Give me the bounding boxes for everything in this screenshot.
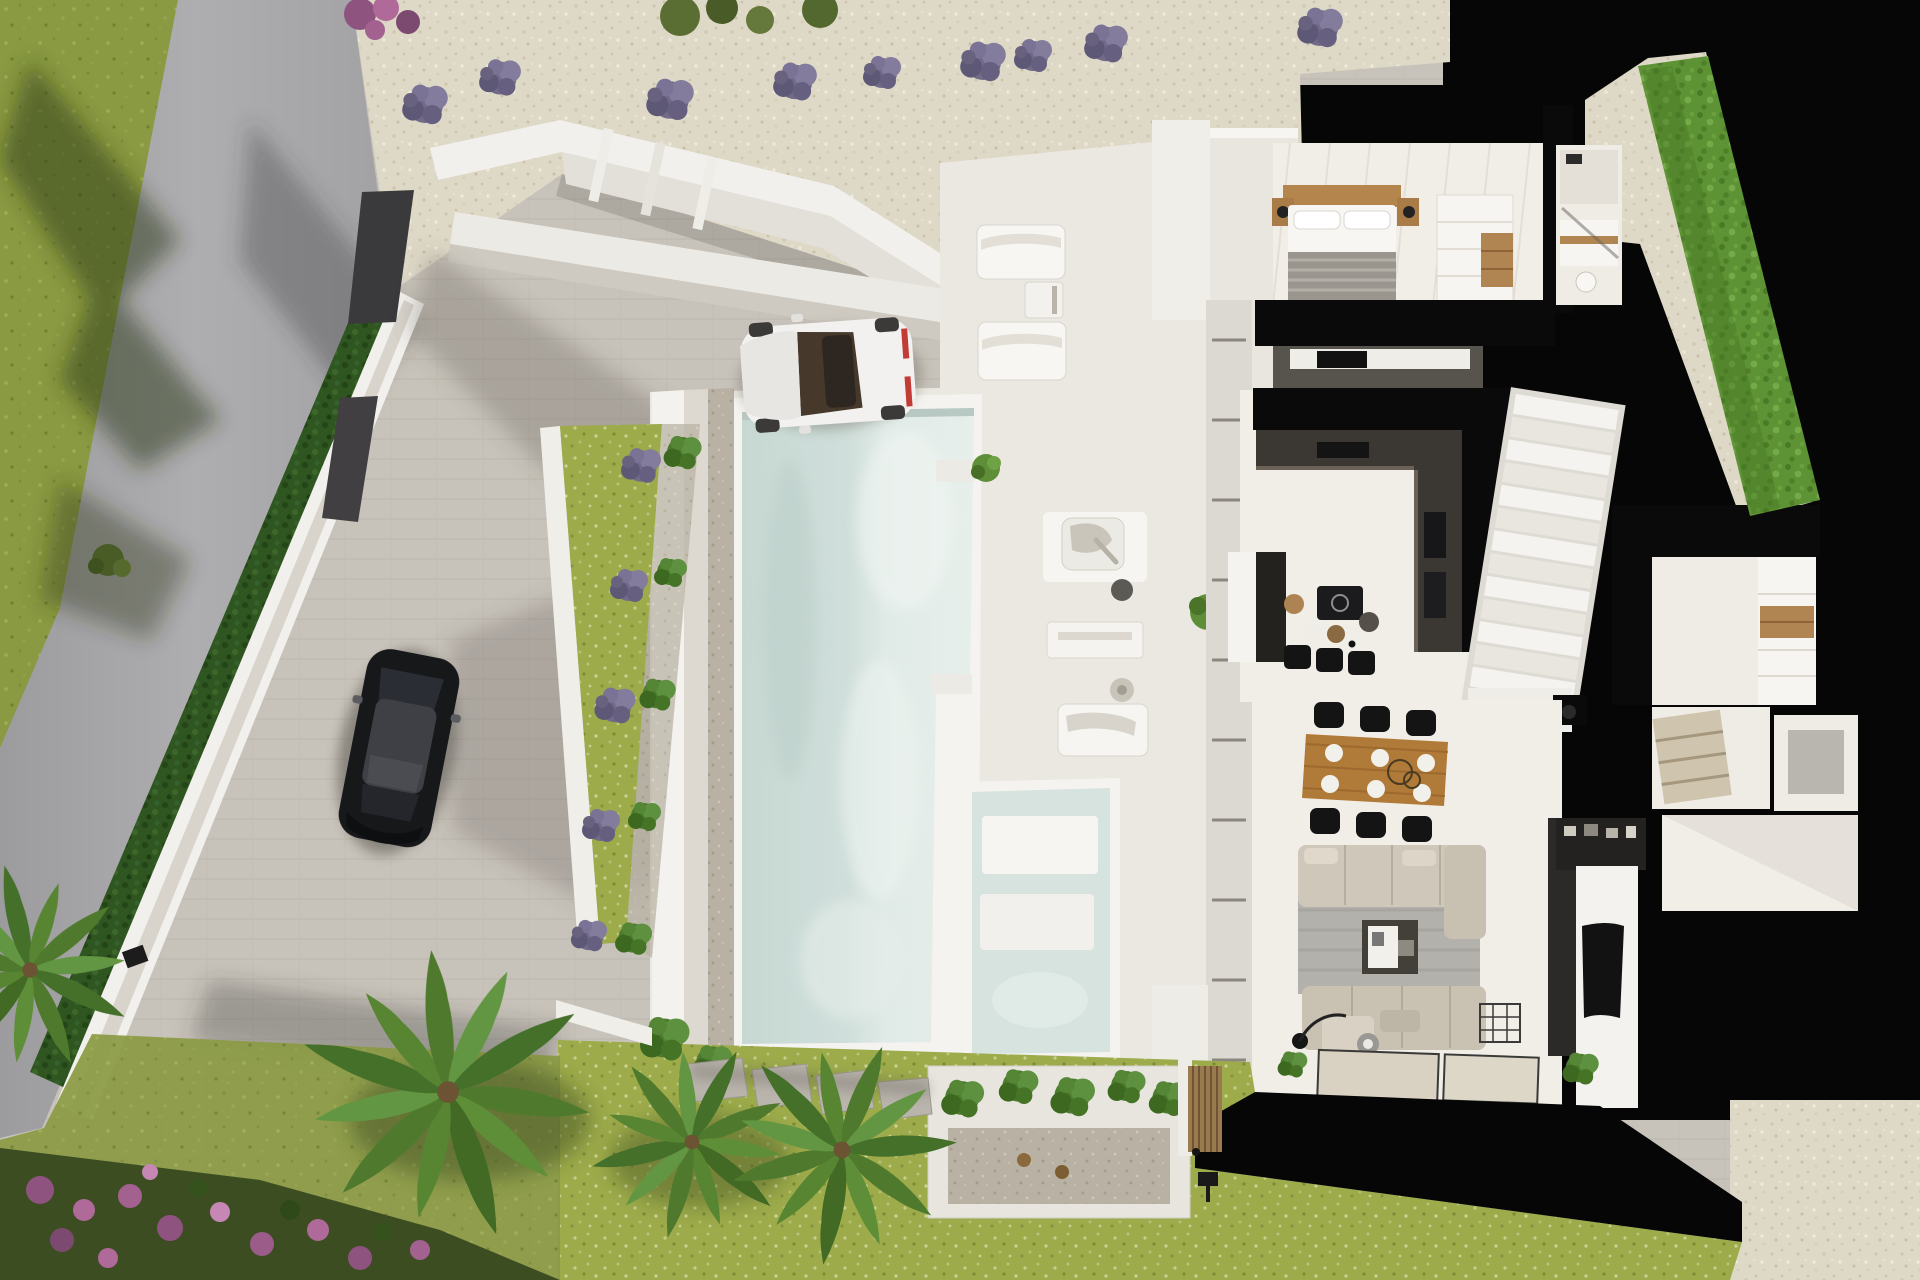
tv-screen-small (1317, 351, 1367, 368)
white-car (734, 306, 926, 439)
wood-stool (1284, 594, 1304, 614)
sun-lounger-2 (978, 322, 1066, 380)
bar-stool-2 (1316, 648, 1343, 672)
dining-chair (1314, 702, 1344, 728)
island-hob (1317, 586, 1363, 620)
pool-step-notch (936, 460, 974, 482)
garden-lamp (1198, 1172, 1218, 1186)
sun-lounger (977, 225, 1065, 279)
gravel-planter (928, 1066, 1190, 1218)
media-niche (1273, 346, 1483, 390)
bar-stool (1284, 645, 1311, 669)
dining-chair (1360, 706, 1390, 732)
island-side (1228, 552, 1258, 662)
floor-lamp (1562, 705, 1576, 719)
round-side-table (1111, 579, 1133, 601)
wardrobe (1437, 195, 1513, 303)
side-table (1025, 282, 1063, 318)
spa-bench-2 (980, 894, 1094, 950)
pantry (1612, 505, 1820, 705)
cooktop (1317, 442, 1369, 458)
floor-mat (1788, 730, 1844, 794)
gravel-corner (1730, 1100, 1920, 1280)
bedroom (1272, 143, 1553, 305)
living-room (1278, 818, 1646, 1108)
bar-stool-3 (1348, 651, 1375, 675)
tv-screen (1582, 923, 1624, 1018)
dining-chair (1402, 816, 1432, 842)
dining-set (1302, 702, 1448, 842)
kitchen-island (1256, 552, 1286, 662)
bathroom (1556, 145, 1622, 305)
spa-bench (982, 816, 1098, 874)
render-canvas (0, 0, 1920, 1280)
outdoor-armchair (1062, 518, 1124, 570)
pool-step-notch-2 (932, 674, 972, 694)
oven (1424, 512, 1446, 558)
bedside-lamp-2 (1403, 206, 1415, 218)
headboard (1283, 185, 1401, 207)
toilet (1576, 272, 1596, 292)
sofa-2 (1302, 986, 1486, 1054)
storage-rooms (1652, 707, 1858, 911)
aerial-villa-render (0, 0, 1920, 1280)
swimming-pool (734, 394, 982, 1054)
wardrobe-niche (1481, 233, 1513, 287)
dining-chair (1310, 808, 1340, 834)
oven-2 (1424, 572, 1446, 618)
dining-chair (1406, 710, 1436, 736)
porch-roof (1152, 120, 1210, 320)
dining-chair (1356, 812, 1386, 838)
coffee-table (1362, 920, 1418, 974)
shower-head (1566, 154, 1582, 164)
bedside-lamp (1277, 206, 1289, 218)
spa-pool (962, 778, 1120, 1064)
